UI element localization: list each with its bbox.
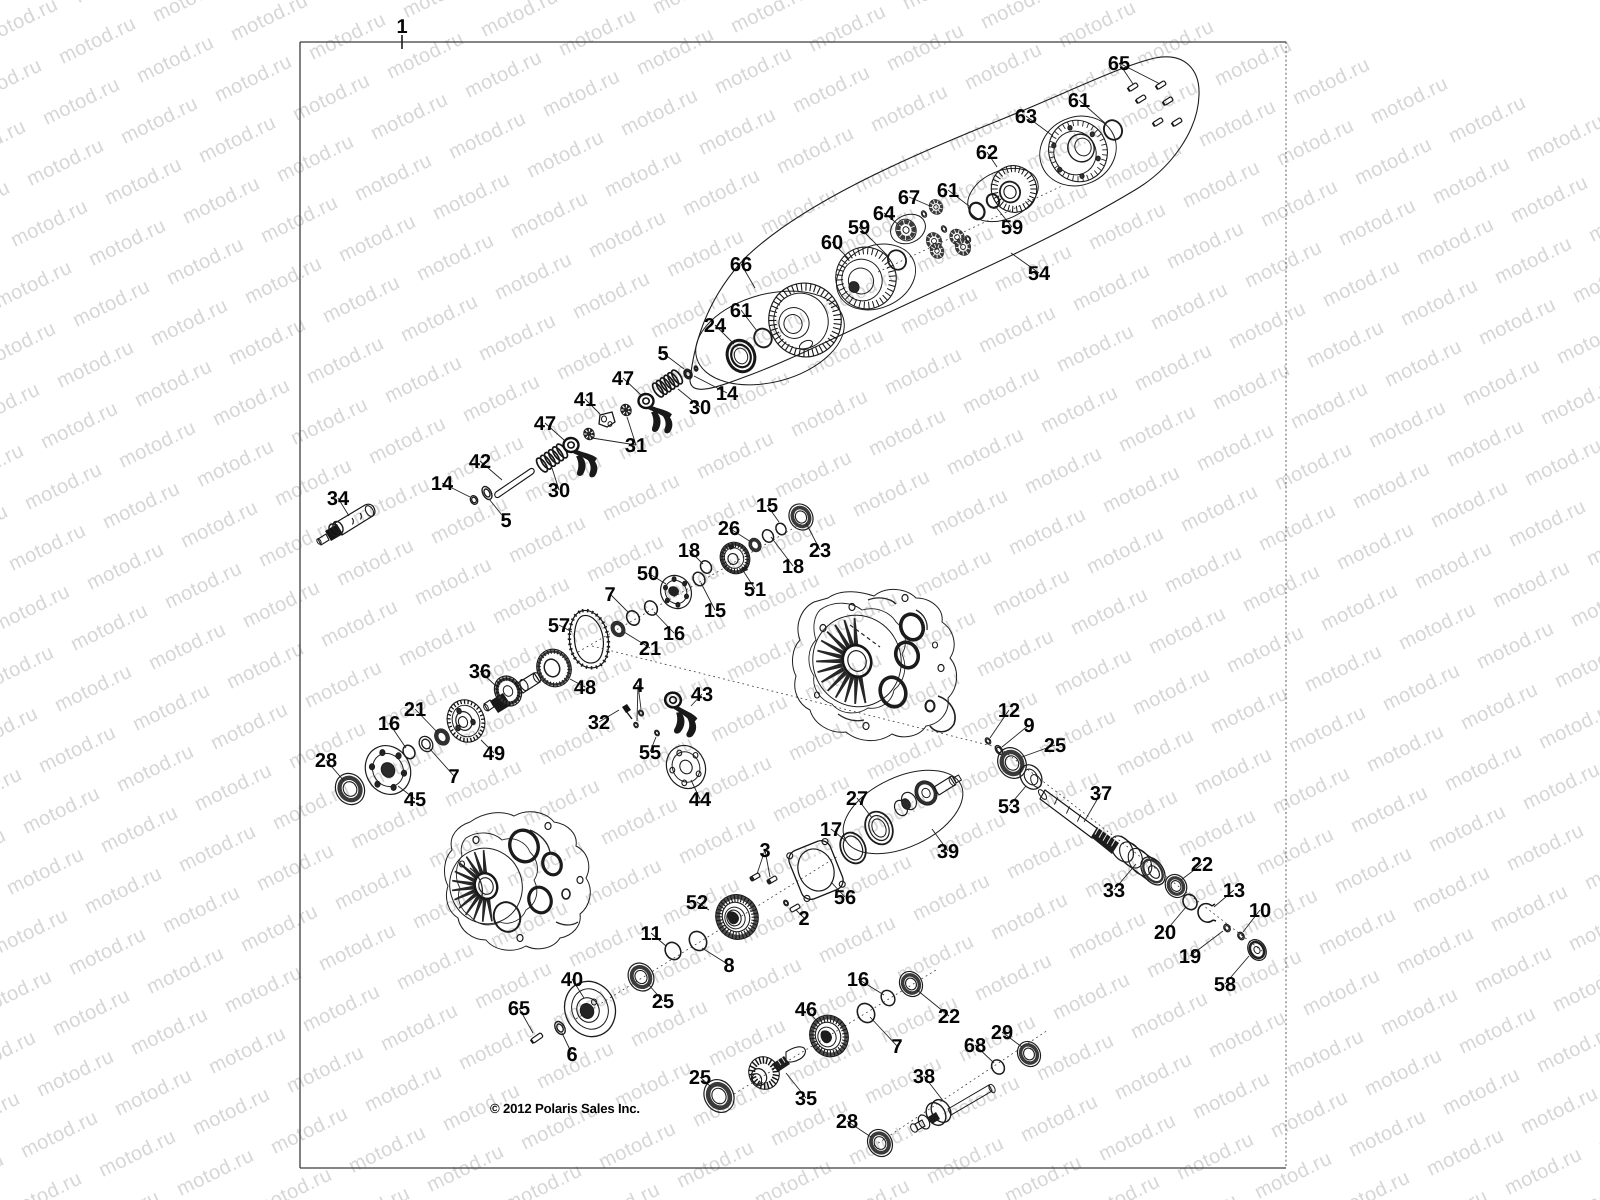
svg-text:16: 16	[847, 969, 869, 991]
svg-text:64: 64	[873, 203, 896, 225]
svg-text:33: 33	[1103, 880, 1125, 902]
svg-text:14: 14	[431, 473, 454, 495]
svg-text:21: 21	[639, 638, 661, 660]
svg-text:© 2012 Polaris Sales Inc.: © 2012 Polaris Sales Inc.	[490, 1101, 640, 1116]
svg-text:25: 25	[689, 1067, 711, 1089]
svg-text:31: 31	[625, 435, 647, 457]
svg-text:18: 18	[782, 556, 804, 578]
svg-text:65: 65	[1108, 53, 1130, 75]
svg-text:19: 19	[1179, 946, 1201, 968]
svg-text:60: 60	[821, 232, 843, 254]
svg-text:38: 38	[913, 1066, 935, 1088]
svg-text:29: 29	[991, 1022, 1013, 1044]
svg-text:47: 47	[612, 368, 634, 390]
svg-text:11: 11	[640, 923, 661, 945]
svg-text:49: 49	[483, 743, 505, 765]
svg-text:53: 53	[998, 796, 1020, 818]
svg-text:37: 37	[1090, 783, 1112, 805]
svg-text:2: 2	[798, 908, 809, 930]
svg-text:30: 30	[689, 397, 711, 419]
svg-text:61: 61	[1068, 90, 1090, 112]
svg-text:61: 61	[730, 300, 752, 322]
svg-text:66: 66	[730, 254, 752, 276]
svg-text:14: 14	[716, 383, 739, 405]
svg-text:67: 67	[898, 187, 920, 209]
svg-text:62: 62	[976, 142, 998, 164]
svg-text:36: 36	[469, 661, 491, 683]
svg-text:48: 48	[574, 677, 596, 699]
svg-text:28: 28	[315, 750, 337, 772]
svg-text:1: 1	[396, 16, 407, 38]
svg-text:15: 15	[756, 495, 778, 517]
svg-text:13: 13	[1223, 880, 1245, 902]
svg-text:20: 20	[1154, 922, 1176, 944]
svg-text:24: 24	[704, 315, 727, 337]
svg-text:6: 6	[566, 1044, 577, 1066]
svg-text:3: 3	[759, 840, 770, 862]
svg-text:12: 12	[998, 700, 1020, 722]
svg-text:4: 4	[632, 675, 644, 697]
svg-text:5: 5	[500, 510, 511, 532]
svg-text:21: 21	[404, 699, 426, 721]
svg-text:28: 28	[836, 1111, 858, 1133]
svg-text:59: 59	[848, 217, 870, 239]
svg-text:47: 47	[534, 413, 556, 435]
svg-text:54: 54	[1028, 263, 1051, 285]
svg-text:58: 58	[1214, 974, 1236, 996]
svg-text:45: 45	[404, 789, 426, 811]
svg-text:22: 22	[938, 1006, 960, 1028]
svg-text:55: 55	[639, 742, 661, 764]
svg-text:22: 22	[1191, 854, 1213, 876]
svg-text:23: 23	[809, 540, 831, 562]
svg-text:15: 15	[704, 600, 726, 622]
svg-text:52: 52	[686, 892, 708, 914]
svg-text:43: 43	[691, 684, 713, 706]
svg-text:17: 17	[820, 819, 842, 841]
svg-text:40: 40	[561, 969, 583, 991]
svg-text:61: 61	[937, 180, 959, 202]
svg-text:30: 30	[548, 480, 570, 502]
svg-text:18: 18	[678, 540, 700, 562]
svg-text:42: 42	[469, 451, 491, 473]
svg-text:7: 7	[448, 766, 459, 788]
svg-text:7: 7	[891, 1036, 902, 1058]
svg-text:25: 25	[652, 991, 674, 1013]
svg-text:35: 35	[795, 1088, 817, 1110]
svg-text:9: 9	[1023, 715, 1034, 737]
svg-text:63: 63	[1015, 106, 1037, 128]
svg-text:51: 51	[744, 579, 766, 601]
svg-text:56: 56	[834, 887, 856, 909]
svg-text:26: 26	[718, 518, 740, 540]
svg-text:44: 44	[689, 789, 712, 811]
svg-text:10: 10	[1249, 900, 1271, 922]
svg-text:41: 41	[574, 389, 596, 411]
svg-text:46: 46	[795, 999, 817, 1021]
svg-text:39: 39	[937, 841, 959, 863]
svg-text:16: 16	[378, 713, 400, 735]
svg-text:7: 7	[604, 584, 615, 606]
svg-text:27: 27	[846, 788, 868, 810]
svg-text:65: 65	[508, 998, 530, 1020]
svg-text:32: 32	[588, 712, 610, 734]
svg-text:16: 16	[663, 623, 685, 645]
svg-text:34: 34	[327, 488, 350, 510]
svg-text:25: 25	[1044, 735, 1066, 757]
svg-text:57: 57	[548, 615, 570, 637]
svg-text:5: 5	[657, 343, 668, 365]
svg-text:68: 68	[964, 1035, 986, 1057]
svg-text:50: 50	[637, 563, 659, 585]
svg-text:8: 8	[723, 955, 734, 977]
svg-text:59: 59	[1001, 217, 1023, 239]
